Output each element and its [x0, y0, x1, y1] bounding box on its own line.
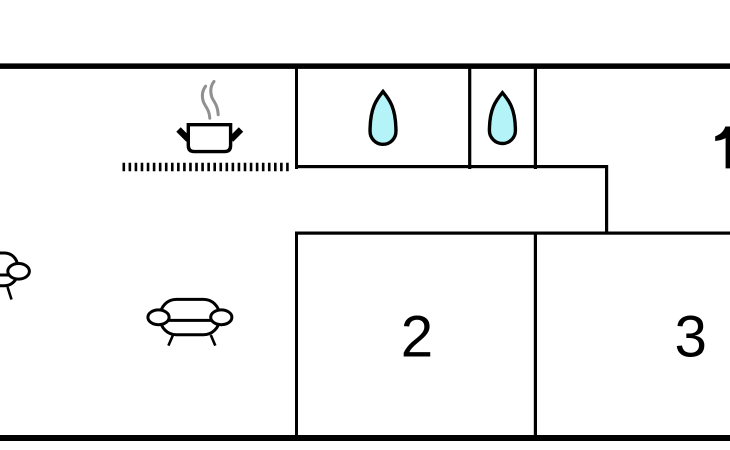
svg-text:2: 2: [401, 304, 433, 369]
svg-text:3: 3: [674, 304, 706, 369]
